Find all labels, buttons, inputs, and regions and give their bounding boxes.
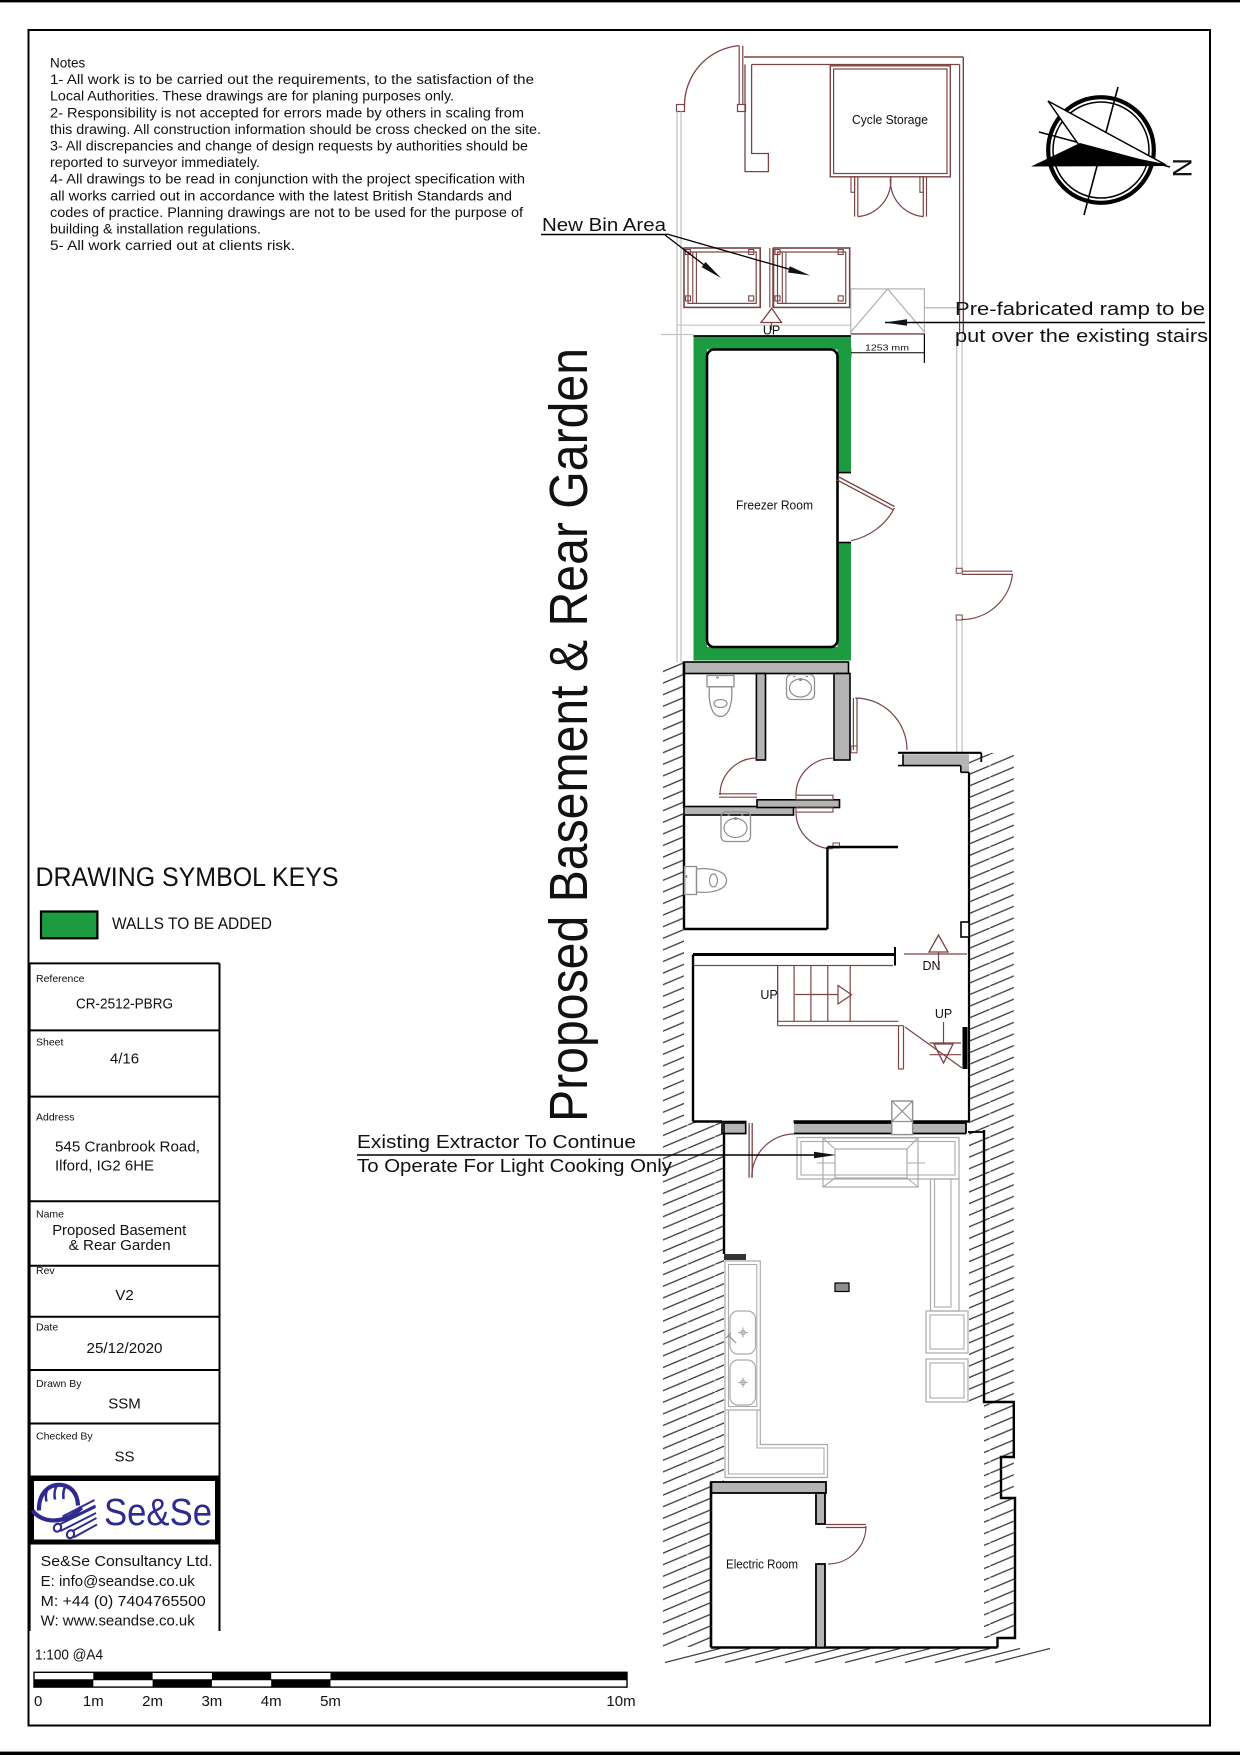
- svg-text:Notes: Notes: [50, 56, 86, 71]
- svg-text:E: info@seandse.co.uk: E: info@seandse.co.uk: [41, 1574, 196, 1590]
- svg-text:To Operate For Light Cooking O: To Operate For Light Cooking Only: [357, 1155, 673, 1176]
- svg-text:4- All drawings to be read in: 4- All drawings to be read in conjunctio…: [50, 172, 525, 187]
- svg-text:Sheet: Sheet: [36, 1037, 64, 1049]
- svg-text:SS: SS: [114, 1448, 134, 1465]
- svg-text:4m: 4m: [261, 1693, 282, 1710]
- svg-text:UP: UP: [935, 1007, 952, 1021]
- svg-text:SSM: SSM: [108, 1396, 141, 1413]
- svg-text:545 Cranbrook Road,: 545 Cranbrook Road,: [55, 1138, 200, 1155]
- svg-text:Local Authorities. These drawi: Local Authorities. These drawings are fo…: [50, 89, 454, 104]
- svg-text:5m: 5m: [320, 1693, 341, 1710]
- svg-text:reported to surveyor immediate: reported to surveyor immediately.: [50, 155, 260, 170]
- svg-text:codes of practice. Planning dr: codes of practice. Planning drawings are…: [50, 205, 523, 220]
- svg-text:1m: 1m: [83, 1693, 104, 1710]
- svg-text:Name: Name: [36, 1208, 64, 1220]
- svg-text:Freezer Room: Freezer Room: [736, 499, 813, 513]
- svg-text:1- All work is to be carried o: 1- All work is to be carried out the req…: [50, 72, 534, 87]
- svg-text:10m: 10m: [606, 1693, 635, 1710]
- svg-text:Electric Room: Electric Room: [726, 1558, 798, 1572]
- svg-text:0: 0: [34, 1693, 42, 1710]
- svg-text:Pre-fabricated ramp to be: Pre-fabricated ramp to be: [955, 298, 1205, 319]
- svg-text:Address: Address: [36, 1112, 75, 1124]
- svg-text:Se&Se: Se&Se: [104, 1492, 212, 1534]
- svg-text:put over the existing stairs: put over the existing stairs: [955, 325, 1208, 346]
- svg-text:WALLS TO BE ADDED: WALLS TO BE ADDED: [112, 914, 272, 933]
- svg-text:Reference: Reference: [36, 973, 85, 985]
- svg-text:1:100 @A4: 1:100 @A4: [35, 1647, 103, 1664]
- svg-text:Checked By: Checked By: [36, 1431, 93, 1443]
- svg-text:all works carried out in accor: all works carried out in accordance with…: [50, 188, 512, 203]
- svg-text:M: +44 (0) 7404765500: M: +44 (0) 7404765500: [41, 1594, 206, 1610]
- svg-text:& Rear Garden: & Rear Garden: [69, 1237, 171, 1254]
- svg-text:Date: Date: [36, 1322, 58, 1334]
- svg-text:DN: DN: [922, 959, 940, 973]
- svg-text:3m: 3m: [201, 1693, 222, 1710]
- svg-text:1253 mm: 1253 mm: [865, 342, 909, 352]
- svg-text:5- All work carried out at cli: 5- All work carried out at clients risk.: [50, 238, 295, 253]
- svg-text:W: www.seandse.co.uk: W: www.seandse.co.uk: [41, 1614, 196, 1630]
- svg-text:2m: 2m: [142, 1693, 163, 1710]
- svg-text:Cycle Storage: Cycle Storage: [852, 113, 928, 127]
- svg-text:CR-2512-PBRG: CR-2512-PBRG: [76, 995, 173, 1012]
- svg-text:4/16: 4/16: [110, 1051, 139, 1068]
- svg-text:N: N: [1167, 158, 1197, 178]
- svg-text:UP: UP: [760, 988, 777, 1002]
- svg-text:Rev: Rev: [36, 1265, 55, 1277]
- svg-text:V2: V2: [115, 1287, 133, 1304]
- svg-text:DRAWING SYMBOL KEYS: DRAWING SYMBOL KEYS: [36, 862, 339, 892]
- svg-text:this drawing. All construction: this drawing. All construction informati…: [50, 122, 541, 137]
- svg-text:Drawn By: Drawn By: [36, 1378, 82, 1390]
- svg-text:building & installation regula: building & installation regulations.: [50, 222, 261, 237]
- svg-text:Se&Se Consultancy Ltd.: Se&Se Consultancy Ltd.: [41, 1554, 213, 1570]
- svg-text:25/12/2020: 25/12/2020: [87, 1340, 163, 1357]
- svg-text:Ilford, IG2 6HE: Ilford, IG2 6HE: [55, 1157, 154, 1174]
- svg-text:Existing Extractor To Continue: Existing Extractor To Continue: [357, 1131, 636, 1152]
- svg-text:3- All discrepancies and chang: 3- All discrepancies and change of desig…: [50, 139, 528, 154]
- svg-text:New Bin Area: New Bin Area: [542, 214, 667, 235]
- svg-text:2- Responsibility is not accep: 2- Responsibility is not accepted for er…: [50, 105, 524, 120]
- svg-text:Proposed Basement & Rear Garde: Proposed Basement & Rear Garden: [539, 348, 599, 1122]
